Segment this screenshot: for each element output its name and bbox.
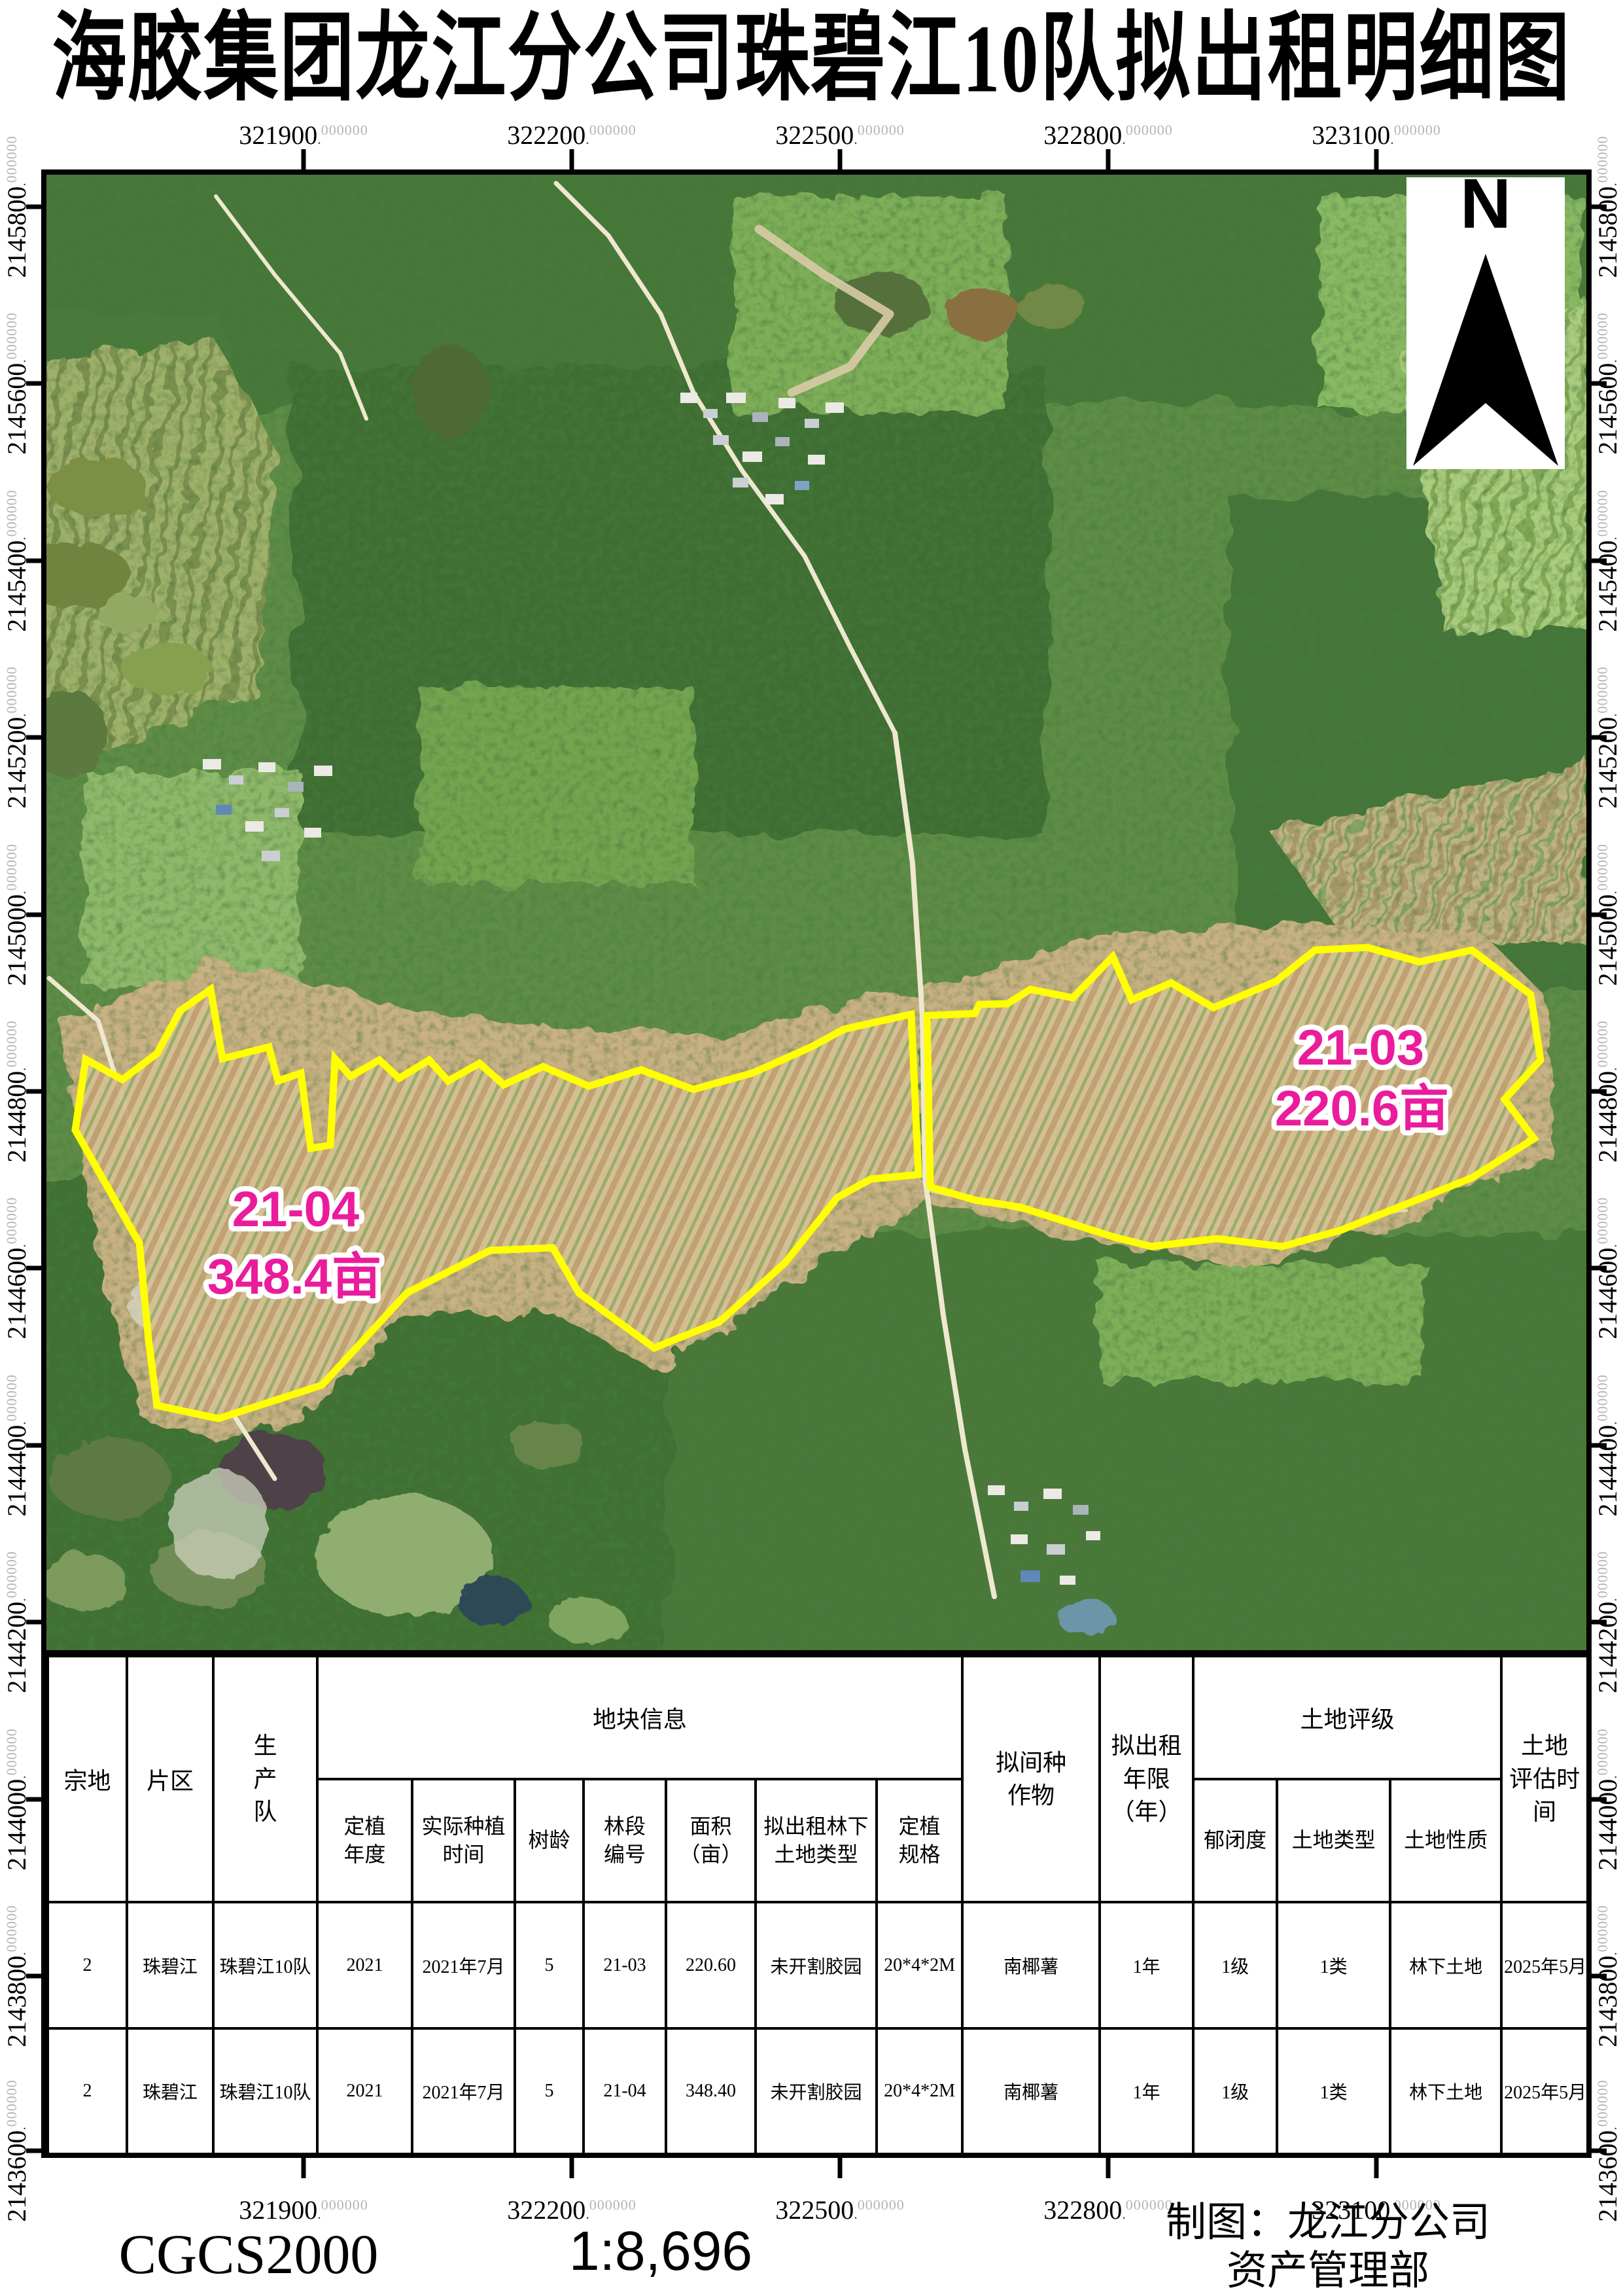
grid-label-right-7: 2144400.000000 bbox=[1595, 1374, 1621, 1517]
crs-label: CGCS2000 bbox=[65, 2226, 432, 2282]
row2-parcel: 2 bbox=[48, 2028, 127, 2154]
header-land-rating: 土地评级 bbox=[1193, 1656, 1501, 1779]
grid-label-bottom-1: 322200.000000 bbox=[507, 2197, 637, 2223]
subheader-plant-year: 定植年度 bbox=[317, 1779, 412, 1902]
row1-area-mu: 220.60 bbox=[666, 1902, 756, 2028]
table-row-1: 2 珠碧江 珠碧江10队 2021 2021年7月 5 21-03 220.60… bbox=[48, 1902, 1588, 2028]
row2-land-nature: 林下土地 bbox=[1390, 2028, 1501, 2154]
row2-tree-age: 5 bbox=[515, 2028, 584, 2154]
header-eval-time: 土地 评估时 间 bbox=[1501, 1656, 1588, 1902]
row2-plant-spec: 20*4*2M bbox=[877, 2028, 962, 2154]
credit-line-1: 制图：龙江分公司 bbox=[1086, 2202, 1570, 2243]
row1-land-type: 1类 bbox=[1277, 1902, 1390, 2028]
grid-label-right-0: 2145800.000000 bbox=[1595, 135, 1621, 278]
header-lease-years: 拟出租年限 （年） bbox=[1100, 1656, 1193, 1902]
grid-label-right-1: 2145600.000000 bbox=[1595, 312, 1621, 455]
page-title: 海胶集团龙江分公司珠碧江10队拟出租明细图 bbox=[0, 10, 1623, 107]
row1-actual-plant-time: 2021年7月 bbox=[412, 1902, 515, 2028]
row1-land-nature: 林下土地 bbox=[1390, 1902, 1501, 2028]
subheader-area-mu: 面积（亩） bbox=[666, 1779, 756, 1902]
grid-label-left-6: 2144600.000000 bbox=[4, 1197, 30, 1339]
row2-intercrop: 南椰薯 bbox=[962, 2028, 1100, 2154]
row2-canopy: 1级 bbox=[1193, 2028, 1277, 2154]
row2-team: 珠碧江10队 bbox=[213, 2028, 317, 2154]
grid-label-top-1: 322200.000000 bbox=[507, 122, 637, 149]
row1-rent-land-type: 未开割胶园 bbox=[756, 1902, 877, 2028]
grid-label-right-11: 2143600.000000 bbox=[1595, 2079, 1621, 2222]
row1-district: 珠碧江 bbox=[127, 1902, 213, 2028]
header-team: 生产队 bbox=[213, 1656, 317, 1902]
subheader-land-type: 土地类型 bbox=[1277, 1779, 1390, 1902]
grid-label-left-1: 2145600.000000 bbox=[4, 312, 30, 455]
header-plot-info: 地块信息 bbox=[317, 1656, 962, 1779]
subheader-section-no: 林段编号 bbox=[584, 1779, 666, 1902]
grid-label-right-10: 2143800.000000 bbox=[1595, 1905, 1621, 2047]
subheader-canopy: 郁闭度 bbox=[1193, 1779, 1277, 1902]
subheader-tree-age: 树龄 bbox=[515, 1779, 584, 1902]
row1-eval-time: 2025年5月 bbox=[1501, 1902, 1588, 2028]
grid-label-left-9: 2144000.000000 bbox=[4, 1728, 30, 1871]
row1-canopy: 1级 bbox=[1193, 1902, 1277, 2028]
grid-label-bottom-2: 322500.000000 bbox=[775, 2197, 905, 2223]
row2-area-mu: 348.40 bbox=[666, 2028, 756, 2154]
row1-plant-spec: 20*4*2M bbox=[877, 1902, 962, 2028]
grid-label-right-4: 2145000.000000 bbox=[1595, 843, 1621, 986]
row1-team: 珠碧江10队 bbox=[213, 1902, 317, 2028]
row1-section-no: 21-03 bbox=[584, 1902, 666, 2028]
header-parcel: 宗地 bbox=[48, 1656, 127, 1902]
grid-label-left-5: 2144800.000000 bbox=[4, 1020, 30, 1163]
header-district: 片区 bbox=[127, 1656, 213, 1902]
grid-label-top-2: 322500.000000 bbox=[775, 122, 905, 149]
grid-label-top-0: 321900.000000 bbox=[239, 122, 368, 149]
row2-actual-plant-time: 2021年7月 bbox=[412, 2028, 515, 2154]
row2-rent-land-type: 未开割胶园 bbox=[756, 2028, 877, 2154]
grid-label-right-2: 2145400.000000 bbox=[1595, 489, 1621, 632]
grid-label-bottom-0: 321900.000000 bbox=[239, 2197, 368, 2223]
grid-label-left-10: 2143800.000000 bbox=[4, 1905, 30, 2047]
grid-label-left-0: 2145800.000000 bbox=[4, 135, 30, 278]
grid-label-right-5: 2144800.000000 bbox=[1595, 1020, 1621, 1163]
grid-label-right-3: 2145200.000000 bbox=[1595, 666, 1621, 809]
parcel-detail-table: 宗地 片区 生产队 地块信息 拟间种作物 拟出租年限 （年） 土地评级 土地 评… bbox=[46, 1650, 1586, 2153]
subheader-rent-land-type: 拟出租林下土地类型 bbox=[756, 1779, 877, 1902]
grid-label-left-8: 2144200.000000 bbox=[4, 1551, 30, 1693]
grid-label-right-8: 2144200.000000 bbox=[1595, 1551, 1621, 1693]
grid-label-right-6: 2144600.000000 bbox=[1595, 1197, 1621, 1339]
grid-label-top-3: 322800.000000 bbox=[1043, 122, 1173, 149]
subheader-actual-plant-time: 实际种植时间 bbox=[412, 1779, 515, 1902]
credit-line-2: 资产管理部 bbox=[1086, 2251, 1570, 2291]
subheader-land-nature: 土地性质 bbox=[1390, 1779, 1501, 1902]
scale-label: 1:8,696 bbox=[478, 2223, 844, 2278]
grid-label-left-2: 2145400.000000 bbox=[4, 489, 30, 632]
table-row-2: 2 珠碧江 珠碧江10队 2021 2021年7月 5 21-04 348.40… bbox=[48, 2028, 1588, 2154]
row1-lease-years: 1年 bbox=[1100, 1902, 1193, 2028]
row2-section-no: 21-04 bbox=[584, 2028, 666, 2154]
map-sheet: 海胶集团龙江分公司珠碧江10队拟出租明细图 bbox=[0, 0, 1623, 2296]
row2-eval-time: 2025年5月 bbox=[1501, 2028, 1588, 2154]
row1-parcel: 2 bbox=[48, 1902, 127, 2028]
header-intercrop: 拟间种作物 bbox=[962, 1656, 1100, 1902]
row1-tree-age: 5 bbox=[515, 1902, 584, 2028]
row2-land-type: 1类 bbox=[1277, 2028, 1390, 2154]
row1-plant-year: 2021 bbox=[317, 1902, 412, 2028]
grid-label-left-7: 2144400.000000 bbox=[4, 1374, 30, 1517]
grid-label-top-4: 323100.000000 bbox=[1312, 122, 1441, 149]
grid-label-left-3: 2145200.000000 bbox=[4, 666, 30, 809]
grid-label-left-4: 2145000.000000 bbox=[4, 843, 30, 986]
grid-label-left-11: 2143600.000000 bbox=[4, 2079, 30, 2222]
row2-district: 珠碧江 bbox=[127, 2028, 213, 2154]
subheader-plant-spec: 定植规格 bbox=[877, 1779, 962, 1902]
grid-label-right-9: 2144000.000000 bbox=[1595, 1728, 1621, 1871]
row2-lease-years: 1年 bbox=[1100, 2028, 1193, 2154]
row1-intercrop: 南椰薯 bbox=[962, 1902, 1100, 2028]
row2-plant-year: 2021 bbox=[317, 2028, 412, 2154]
